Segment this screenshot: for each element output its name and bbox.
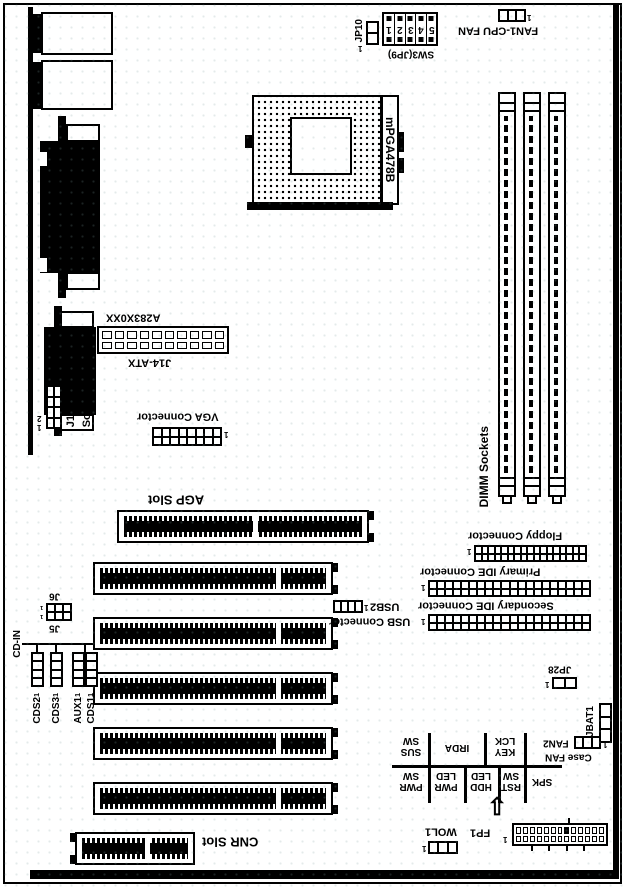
pin: [567, 590, 573, 596]
cpu-fan-label: FAN1-CPU FAN: [458, 24, 538, 36]
sw3-dip-switch: 1 2 3 4 5: [382, 12, 438, 46]
pin: [486, 582, 492, 588]
pin: [190, 331, 200, 339]
atx-power-connector: [97, 326, 229, 354]
primary-ide-header: [428, 580, 591, 597]
secondary-ide-pin1-marker: 1: [421, 617, 425, 625]
pin: [554, 555, 559, 561]
j5-pin1-marker: 1: [40, 613, 43, 619]
pin: [537, 836, 542, 843]
pin: [33, 679, 42, 685]
cds3-label: CDS3: [51, 697, 62, 724]
pin: [462, 616, 468, 622]
pin: [558, 836, 563, 843]
pin: [55, 398, 60, 407]
pin: [197, 438, 204, 445]
floppy-pin1-marker: 1: [467, 547, 471, 555]
pin: [551, 624, 557, 630]
pin: [558, 827, 563, 834]
pin: [483, 547, 488, 553]
j10-pin1-marker: 1: [37, 423, 41, 431]
ps2-port-bottom: [41, 60, 113, 110]
pin: [202, 342, 212, 350]
sw3-position-5: 5: [426, 14, 436, 44]
pin: [537, 827, 542, 834]
pin: [548, 547, 553, 553]
pin: [575, 582, 581, 588]
pin: [177, 342, 187, 350]
pin: [64, 605, 70, 611]
case-fan-header: [574, 736, 601, 749]
pin: [544, 836, 549, 843]
pin: [140, 342, 150, 350]
parallel-port-notch-2: [40, 258, 47, 272]
j6-pin1-marker: 1: [40, 604, 43, 610]
agp-slot: [117, 510, 369, 543]
pin: [476, 547, 481, 553]
pin: [154, 429, 161, 436]
ps2-port-top: [41, 12, 113, 55]
jp10-label: JP10: [354, 19, 365, 42]
pin: [528, 555, 533, 561]
board-bottom-edge: [30, 870, 615, 879]
motherboard-layout-diagram: 2 1 J10-Front PanelSound Connector mPGA4…: [0, 0, 625, 887]
dimm-socket-3: [548, 92, 566, 497]
pin: [509, 11, 516, 20]
pin: [527, 582, 533, 588]
cpu-socket-nub-left: [245, 135, 252, 148]
vga-pin1-marker: 1: [224, 430, 228, 438]
fp-cell-rst-sw: RSTSW: [500, 770, 522, 792]
pin: [214, 438, 221, 445]
vga-header: [152, 427, 222, 446]
fp1-label: FP1: [470, 826, 490, 838]
pin: [478, 624, 484, 630]
pin: [215, 342, 225, 350]
pin: [494, 616, 500, 622]
pin: [554, 679, 564, 687]
pin: [564, 836, 569, 843]
pin: [522, 547, 527, 553]
pin: [446, 582, 452, 588]
pin: [535, 616, 541, 622]
fp-cell-irda: IRDA: [432, 742, 482, 753]
pin: [52, 654, 61, 660]
pin: [551, 616, 557, 622]
primary-ide-pin1-marker: 1: [421, 583, 425, 591]
pin: [551, 827, 556, 834]
pin: [48, 408, 53, 417]
pci-slot-1: [93, 562, 333, 595]
floppy-header: [474, 545, 587, 562]
pin: [535, 624, 541, 630]
usb2-pin1-marker: 1: [364, 603, 368, 611]
pin: [580, 547, 585, 553]
pin: [462, 582, 468, 588]
aux1-header: [72, 652, 85, 687]
pin: [202, 331, 212, 339]
pin: [55, 419, 60, 428]
pin: [509, 555, 514, 561]
pci-slot-2: [93, 617, 333, 650]
pin: [523, 836, 528, 843]
pin: [127, 331, 137, 339]
pin: [152, 342, 162, 350]
pin: [601, 718, 610, 729]
fp-cell-key-lck: KEYLCK: [488, 735, 522, 757]
pin: [190, 342, 200, 350]
pin: [541, 547, 546, 553]
pin: [115, 342, 125, 350]
pin: [592, 827, 597, 834]
board-right-edge: [613, 5, 619, 879]
pin: [571, 836, 576, 843]
pin: [535, 582, 541, 588]
sw3-position-3: 3: [405, 14, 415, 44]
pin: [571, 827, 576, 834]
pin: [171, 438, 178, 445]
pin: [74, 662, 83, 668]
jp28-jumper: [552, 677, 577, 689]
pin: [494, 624, 500, 630]
pin: [567, 616, 573, 622]
pin: [575, 590, 581, 596]
cpu-socket-nub-right2: [397, 158, 404, 173]
pin: [583, 590, 589, 596]
parallel-port-tab-bottom: [66, 272, 100, 290]
pin: [580, 555, 585, 561]
fp1-tick-b4: [583, 846, 585, 851]
pin: [561, 547, 566, 553]
pin: [519, 616, 525, 622]
jbat1-label: JBAT1: [585, 706, 596, 737]
pci-slot-5: [93, 782, 333, 815]
pin: [489, 547, 494, 553]
pin: [115, 331, 125, 339]
pin: [74, 679, 83, 685]
pin: [454, 582, 460, 588]
cds2-label-wrap: CDS21: [31, 688, 44, 728]
pin: [163, 438, 170, 445]
pin: [528, 547, 533, 553]
pin: [33, 662, 42, 668]
vga-label: VGA Connector: [137, 410, 219, 422]
pin: [543, 616, 549, 622]
pin: [165, 342, 175, 350]
pin: [55, 408, 60, 417]
pin: [446, 616, 452, 622]
pin: [583, 616, 589, 622]
pin: [561, 555, 566, 561]
dimm-socket-1: [498, 92, 516, 497]
pin: [56, 605, 62, 611]
pin: [470, 616, 476, 622]
j6-label: J6: [49, 590, 60, 601]
cpu-socket-lever: [247, 202, 393, 210]
cds1-label-wrap: CDS11: [85, 688, 98, 728]
fan2-label: FAN2: [543, 737, 569, 748]
pin: [33, 671, 42, 677]
pin: [530, 836, 535, 843]
j10-sound-header: [46, 385, 62, 429]
fp-cell-pwr-sw: PWRSW: [396, 770, 426, 792]
fp1-tick-b3: [566, 846, 568, 851]
usb-connector-label: USB Connector: [329, 615, 410, 627]
pin: [454, 616, 460, 622]
cds2-label: CDS2: [32, 697, 43, 724]
pin: [438, 624, 444, 630]
pin: [102, 331, 112, 339]
pin: [165, 331, 175, 339]
cpu-socket-center: [290, 117, 352, 175]
parallel-port-body: [40, 141, 100, 273]
pin: [574, 555, 579, 561]
pin: [543, 624, 549, 630]
pin: [478, 590, 484, 596]
pin: [500, 11, 507, 20]
pin: [188, 438, 195, 445]
usb2-label: USB2: [370, 600, 399, 612]
parallel-port-notch-1: [40, 152, 47, 166]
j6-j5-jumper-block: [46, 603, 72, 621]
pin: [205, 438, 212, 445]
pin: [567, 547, 572, 553]
pin: [519, 624, 525, 630]
pin: [438, 616, 444, 622]
fp-table-top-div1: [428, 733, 431, 765]
pin: [171, 429, 178, 436]
pin: [215, 331, 225, 339]
cds1-label: CDS1: [86, 697, 97, 724]
pin: [511, 582, 517, 588]
cpu-fan-pin1-marker: 1: [527, 13, 531, 21]
pin: [87, 662, 96, 668]
pin: [446, 624, 452, 630]
pin: [180, 429, 187, 436]
pin: [87, 679, 96, 685]
pin: [511, 590, 517, 596]
pin: [527, 590, 533, 596]
pin: [335, 602, 340, 611]
cpu-socket-label: mPGA478B: [383, 117, 397, 182]
jp10-jumper: [366, 21, 379, 45]
pin: [584, 738, 590, 747]
pin: [48, 387, 53, 396]
pin: [543, 582, 549, 588]
pin: [585, 836, 590, 843]
pin: [530, 827, 535, 834]
pin: [476, 555, 481, 561]
pin: [180, 438, 187, 445]
dimm-socket-2: [523, 92, 541, 497]
pin: [214, 429, 221, 436]
pin: [519, 590, 525, 596]
pin: [55, 387, 60, 396]
pin: [140, 331, 150, 339]
ps2-port-bracket-top: [33, 14, 41, 53]
pin: [52, 671, 61, 677]
aux1-label-wrap: AUX11: [72, 688, 85, 728]
pin: [177, 331, 187, 339]
cpu-fan-header: [498, 9, 526, 22]
pin: [599, 836, 604, 843]
atx-label: J14-ATX: [128, 356, 171, 368]
pin: [430, 582, 436, 588]
floppy-label: Floppy Connector: [468, 529, 562, 541]
pin: [197, 429, 204, 436]
wol1-header: [428, 841, 458, 854]
sw3-position-1: 1: [384, 14, 394, 44]
pin: [449, 843, 456, 852]
j5-label: J5: [49, 622, 60, 633]
cds2-header: [31, 652, 44, 687]
fp1-pin1-marker: 1: [503, 835, 507, 843]
sw3-label: SW3(JP9): [383, 48, 439, 59]
pin: [502, 555, 507, 561]
pin: [430, 590, 436, 596]
fp1-tick-b2: [548, 846, 550, 851]
pin: [522, 555, 527, 561]
fp-table-top-div2: [484, 733, 487, 765]
cds1-header: [85, 652, 98, 687]
cds3-label-wrap: CDS31: [50, 688, 63, 728]
pin: [486, 590, 492, 596]
pci-slot-4: [93, 727, 333, 760]
pin: [356, 602, 361, 611]
pin: [543, 590, 549, 596]
pin: [502, 590, 508, 596]
pin: [48, 605, 54, 611]
pin: [489, 555, 494, 561]
pin: [342, 602, 347, 611]
pin: [535, 547, 540, 553]
pin: [575, 616, 581, 622]
pin: [48, 613, 54, 619]
primary-ide-label: Primary IDE Connector: [420, 565, 540, 577]
pin: [574, 547, 579, 553]
pin: [515, 555, 520, 561]
pin: [48, 398, 53, 407]
pin: [478, 616, 484, 622]
pin: [599, 827, 604, 834]
pin: [56, 613, 62, 619]
pin: [511, 616, 517, 622]
jp10-pin1-marker: 1: [358, 44, 362, 52]
pin: [511, 624, 517, 630]
pin: [48, 419, 53, 428]
pin: [494, 590, 500, 596]
pin: [368, 34, 377, 43]
pin: [583, 624, 589, 630]
pin: [430, 843, 437, 852]
pin: [87, 654, 96, 660]
pin: [559, 582, 565, 588]
pin: [454, 624, 460, 630]
pin: [430, 616, 436, 622]
pin: [559, 590, 565, 596]
pin: [516, 836, 521, 843]
fp-cell-spk: SPK: [526, 776, 558, 787]
parallel-port-tab-top: [66, 124, 100, 142]
pin: [567, 582, 573, 588]
sw3-position-2: 2: [394, 14, 404, 44]
pin: [102, 342, 112, 350]
j10-pin2-marker: 2: [37, 414, 41, 422]
pin: [502, 547, 507, 553]
fp1-tick-b1: [531, 846, 533, 851]
pin: [535, 590, 541, 596]
pin: [494, 582, 500, 588]
pin: [559, 624, 565, 630]
cnr-slot: [75, 832, 195, 865]
pin: [87, 671, 96, 677]
case-fan-label: Case FAN: [545, 751, 592, 762]
dimm-label-wrap: DIMM Sockets: [476, 418, 492, 516]
pin: [527, 624, 533, 630]
pin: [470, 582, 476, 588]
fp-table-hline: [392, 765, 562, 768]
pin: [578, 836, 583, 843]
j10-sound-label: J10-Front PanelSound Connector: [62, 318, 96, 444]
jp28-pin1-marker: 1: [545, 680, 549, 688]
pin: [535, 555, 540, 561]
pin: [585, 827, 590, 834]
pin: [74, 654, 83, 660]
pin: [446, 590, 452, 596]
pin: [496, 547, 501, 553]
pin: [592, 836, 597, 843]
cnr-label: CNR Slot: [202, 835, 258, 849]
pin: [502, 616, 508, 622]
pin: [566, 679, 576, 687]
cpu-socket-nub-right1: [397, 132, 404, 152]
fp1-tick-top: [568, 818, 570, 823]
pin: [509, 547, 514, 553]
atx-model-label: A283X0XX: [106, 311, 160, 323]
pin: [152, 331, 162, 339]
pin: [438, 590, 444, 596]
pin: [576, 738, 582, 747]
pin: [515, 547, 520, 553]
fp-cell-sus-sw: SUSSW: [396, 735, 426, 757]
cds3-header: [50, 652, 63, 687]
pin: [567, 555, 572, 561]
pin: [349, 602, 354, 611]
usb2-header: [333, 600, 363, 613]
secondary-ide-header: [428, 614, 591, 631]
pin: [551, 590, 557, 596]
pin: [52, 662, 61, 668]
pin: [486, 616, 492, 622]
dimm-label: DIMM Sockets: [477, 426, 491, 507]
pin: [483, 555, 488, 561]
pin: [502, 624, 508, 630]
pin: [517, 11, 524, 20]
sw3-position-4: 4: [415, 14, 425, 44]
pin: [551, 836, 556, 843]
pin: [567, 624, 573, 630]
pin: [33, 654, 42, 660]
cd-in-label: CD-IN: [12, 630, 23, 658]
pin: [52, 679, 61, 685]
aux1-label: AUX1: [73, 697, 84, 724]
fp-pin1-arrow-icon: ⇧: [487, 796, 507, 820]
pin: [462, 624, 468, 630]
pin: [438, 582, 444, 588]
pin: [74, 671, 83, 677]
pin: [478, 582, 484, 588]
pin: [575, 624, 581, 630]
